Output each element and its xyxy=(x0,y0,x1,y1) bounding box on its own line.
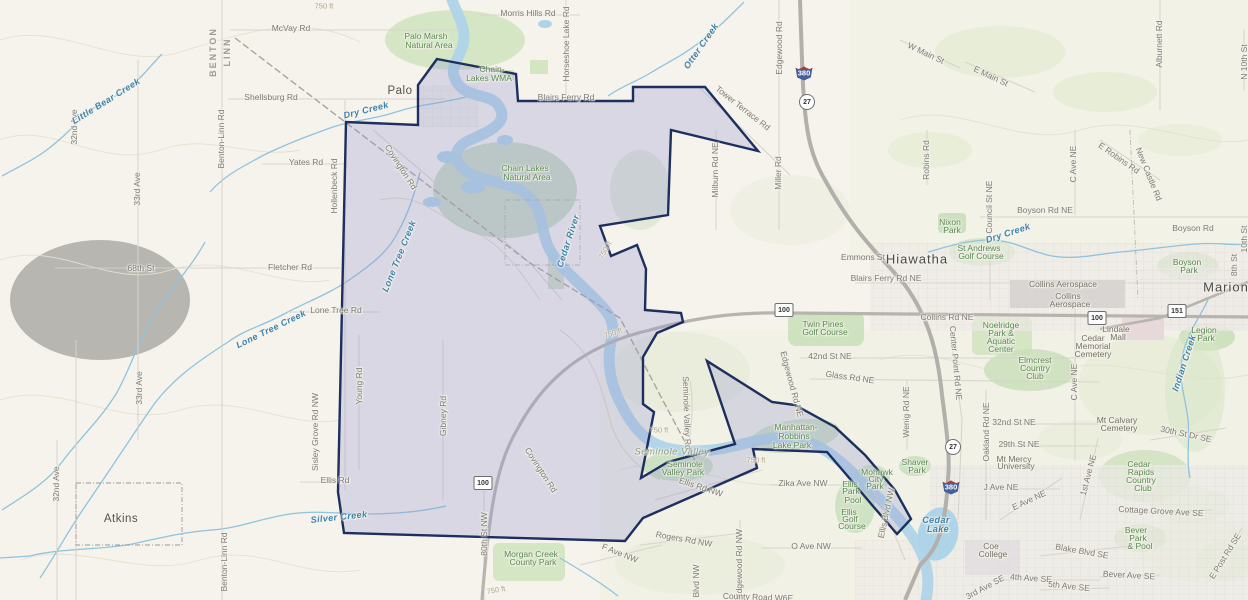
topo-map[interactable]: BENTONLINNPaloAtkinsHiawathaMarionMcVay … xyxy=(0,0,1248,600)
basemap-layers xyxy=(0,0,1248,600)
